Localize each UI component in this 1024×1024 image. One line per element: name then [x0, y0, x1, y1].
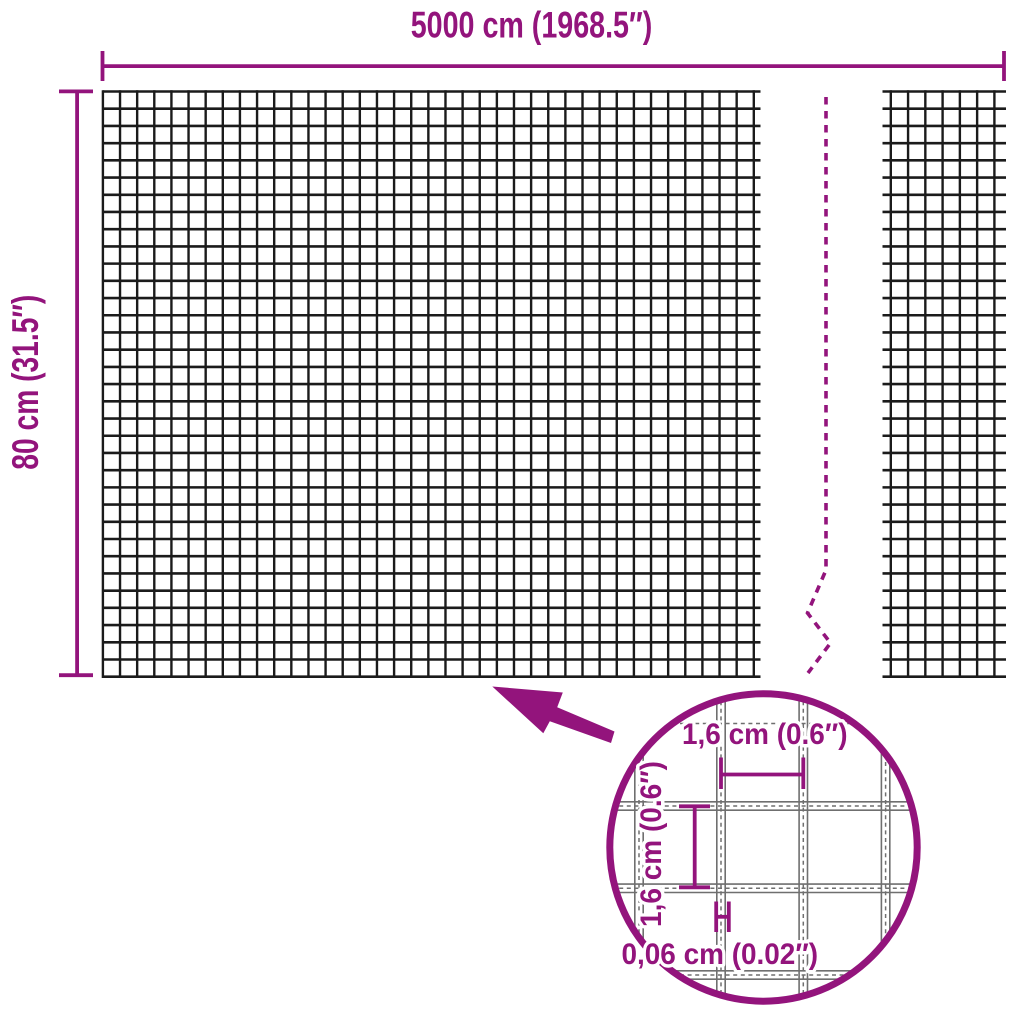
svg-text:1,6 cm (0.6″): 1,6 cm (0.6″)	[682, 718, 848, 751]
svg-text:80 cm (31.5″): 80 cm (31.5″)	[5, 295, 46, 470]
svg-text:5000 cm (1968.5″): 5000 cm (1968.5″)	[411, 4, 653, 45]
svg-text:1,6 cm (0.6″): 1,6 cm (0.6″)	[635, 761, 668, 927]
svg-text:0,06 cm (0.02″): 0,06 cm (0.02″)	[622, 938, 819, 971]
